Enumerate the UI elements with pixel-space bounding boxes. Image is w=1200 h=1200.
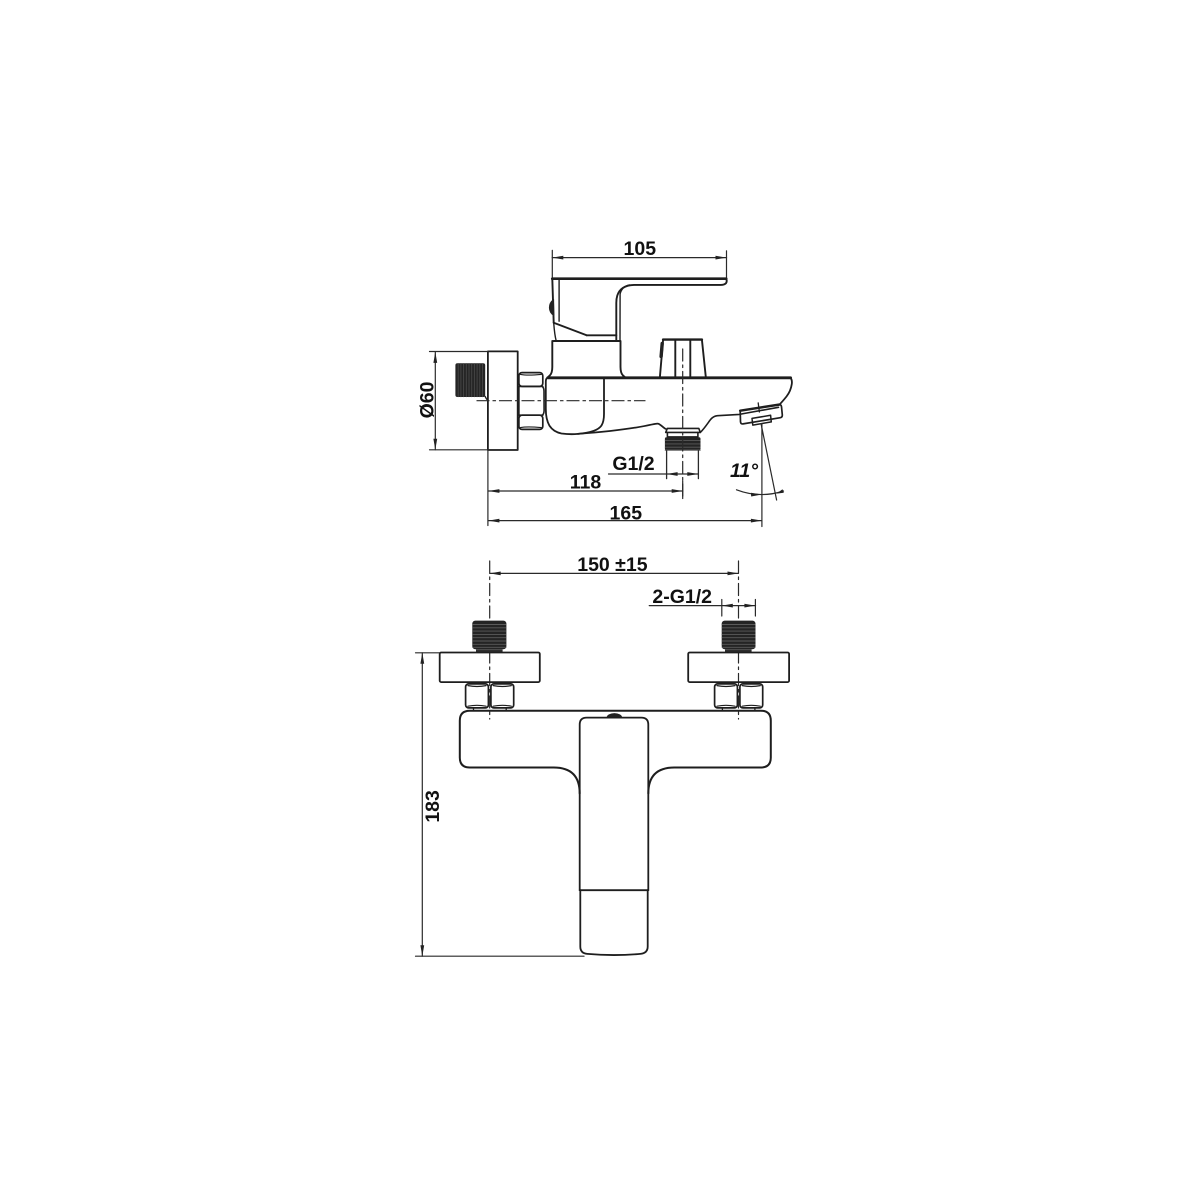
svg-text:G1/2: G1/2 [612, 453, 654, 475]
svg-text:105: 105 [624, 238, 657, 260]
svg-text:165: 165 [610, 503, 643, 525]
svg-text:Ø60: Ø60 [416, 381, 438, 418]
svg-text:183: 183 [422, 790, 444, 823]
svg-text:118: 118 [570, 471, 602, 493]
svg-text:11°: 11° [730, 460, 758, 482]
svg-text:150 ±15: 150 ±15 [577, 554, 647, 576]
svg-text:2-G1/2: 2-G1/2 [652, 586, 712, 608]
